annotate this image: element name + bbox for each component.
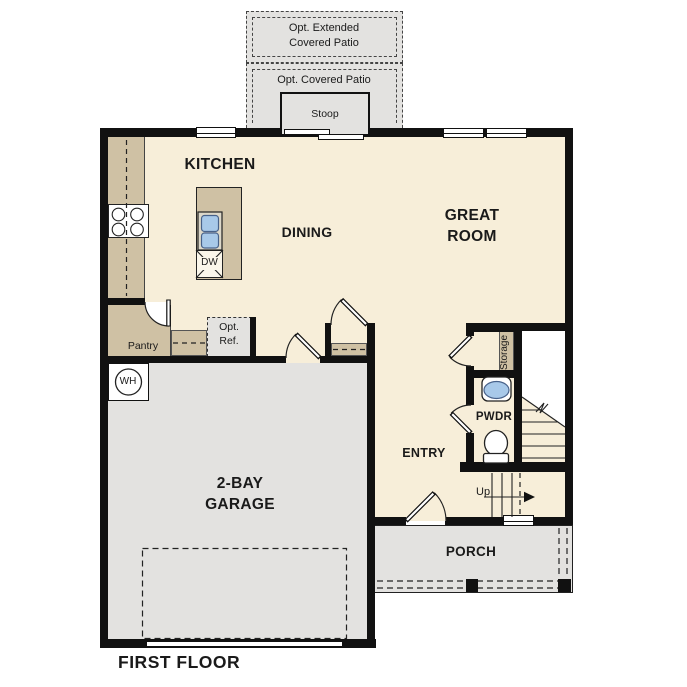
- window: [486, 128, 527, 138]
- wall-entry-bottom-c: [533, 517, 573, 525]
- wall-garage-right: [367, 323, 375, 648]
- wall-pwdr-right: [514, 331, 522, 472]
- label-opt-ref: Opt. Ref.: [212, 321, 246, 348]
- label-opt-extended-patio: Opt. Extended Covered Patio: [268, 21, 380, 50]
- floor-plan: Opt. Extended Covered Patio Opt. Covered…: [0, 0, 687, 687]
- label-dishwasher: DW: [200, 257, 219, 270]
- label-storage: Storage: [499, 333, 514, 371]
- label-entry: ENTRY: [402, 446, 445, 462]
- label-water-heater: WH: [120, 376, 137, 389]
- garage-door-panel: [147, 642, 342, 647]
- wall-optref-stub: [250, 317, 256, 357]
- window: [503, 515, 534, 526]
- window: [443, 128, 484, 138]
- wall-pwdr-bottom: [460, 462, 573, 472]
- label-great-room: GREAT ROOM: [435, 205, 509, 247]
- label-dining: DINING: [282, 224, 333, 242]
- coat-closet-shelf: [331, 343, 367, 356]
- counter-segment: [171, 330, 207, 356]
- label-porch: PORCH: [446, 544, 496, 561]
- wall-entry-bottom-a: [367, 517, 406, 525]
- wall-closet-left: [325, 323, 331, 363]
- sliding-door-panel: [318, 134, 364, 140]
- wall-kitchen-garage-a: [100, 356, 286, 363]
- wall-entry-bottom-b: [445, 517, 504, 525]
- wall-left: [100, 128, 108, 648]
- label-opt-covered-patio: Opt. Covered Patio: [277, 74, 371, 88]
- wall-pwdr-left-a: [466, 323, 474, 336]
- label-kitchen: KITCHEN: [185, 155, 256, 174]
- label-pantry: Pantry: [128, 340, 158, 353]
- window: [196, 127, 236, 138]
- cooktop: [108, 204, 149, 238]
- label-first-floor: FIRST FLOOR: [118, 652, 240, 674]
- wall-pantry-stub: [100, 298, 145, 305]
- label-stoop: Stoop: [311, 108, 338, 121]
- label-pwdr: PWDR: [476, 410, 512, 424]
- label-garage: 2-BAY GARAGE: [188, 473, 292, 515]
- label-up: Up: [476, 486, 490, 500]
